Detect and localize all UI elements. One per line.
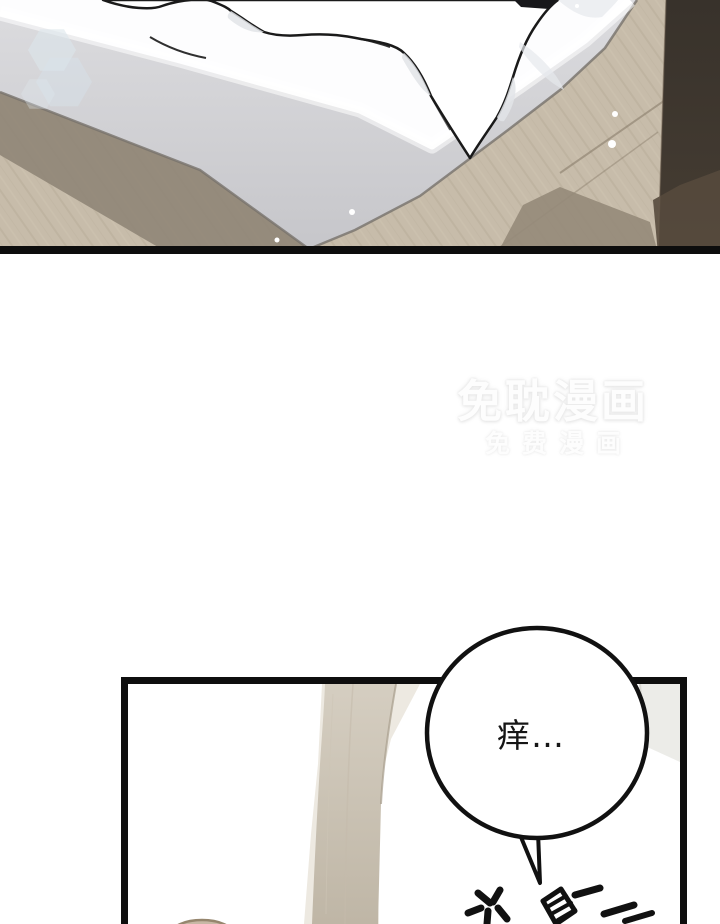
watermark: 免耽漫画 免费漫画 — [393, 379, 713, 456]
watermark-line2: 免费漫画 — [393, 431, 713, 456]
sfx-handwritten — [450, 858, 720, 924]
top-panel-illustration — [0, 0, 720, 254]
comic-page: 免耽漫画 免费漫画 — [0, 0, 720, 924]
watermark-line1: 免耽漫画 — [393, 379, 713, 424]
fabric-fold — [312, 684, 396, 924]
top-panel-border — [0, 246, 720, 254]
foreground-object — [171, 920, 233, 924]
sfx-character-strokes — [543, 888, 652, 924]
speech-bubble-text: 痒… — [497, 709, 617, 757]
sfx-asterisk — [468, 890, 507, 924]
